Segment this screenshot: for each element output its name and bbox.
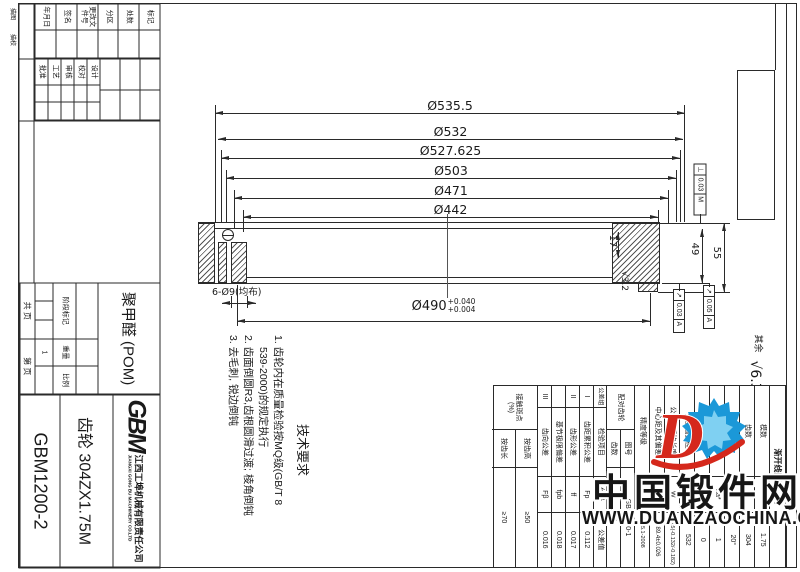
- contact-h-value: ≥50: [515, 468, 537, 567]
- roughness-rest-label: 其余: [755, 333, 766, 355]
- ext-line: [215, 105, 216, 223]
- sign-header: 审核: [60, 59, 73, 85]
- center-mark: [447, 214, 448, 298]
- sig-cell: [60, 85, 73, 103]
- dim-d532: Ø532: [218, 139, 683, 140]
- fcf-datum: A: [704, 315, 714, 325]
- margin-label-2: 描校: [4, 34, 16, 56]
- fcf-value: 0.05: [704, 296, 714, 315]
- bore-tol-lower: +0.004: [448, 306, 476, 314]
- tol-code: ff: [565, 477, 579, 513]
- dim-label: Ø442: [243, 202, 658, 217]
- top-right-box-edge: [775, 3, 776, 70]
- weight-value: 1: [34, 339, 52, 367]
- left-hole-wall-hatch: [218, 242, 227, 283]
- dim-label: Ø527.625: [221, 143, 680, 158]
- margin-label-1: 描图: [4, 8, 16, 30]
- sign-header: 校对: [73, 59, 86, 85]
- title-block-spacer: [19, 121, 159, 283]
- dim-label: Ø535.5: [215, 98, 685, 113]
- fcf-value: 0.03: [674, 300, 684, 319]
- ext-line: [660, 223, 730, 224]
- tech-req-title: 技术要求: [295, 335, 310, 565]
- top-right-box: [737, 70, 775, 220]
- tol-value: 0.016: [537, 513, 551, 567]
- sign-header: 工艺: [47, 59, 60, 85]
- ext-line: [243, 210, 244, 232]
- fcf-symbol: ↗: [704, 286, 714, 296]
- stage-label: 阶段标记: [52, 283, 75, 339]
- drawing-sheet: 描图 描校 标记 处数 分区 更改文件号 签名 年月日: [0, 0, 800, 572]
- material-section: 聚甲醛 (POM) 阶段标记 重量 比例 1 共 页 第 页: [19, 283, 159, 395]
- stage-box: [34, 320, 52, 339]
- contact-l-label: 按齿长: [492, 430, 515, 468]
- rev-header: 标记: [138, 4, 159, 30]
- dim-label: Ø471: [234, 183, 668, 198]
- sig-cell: [119, 59, 139, 90]
- fcf-perpendicularity: ⊥ 0.03 M: [694, 164, 707, 216]
- tech-req-line: 3. 去毛刺, 锐边倒钝: [225, 335, 240, 565]
- ext-line: [662, 283, 710, 284]
- tol-group: III: [537, 386, 551, 408]
- ext-line: [234, 190, 235, 228]
- dim-d442: Ø442: [243, 217, 658, 218]
- rim-top-line2: [215, 228, 612, 229]
- rev-header: 年月日: [34, 4, 55, 30]
- ext-line: [676, 170, 677, 222]
- dim-55: [724, 223, 725, 292]
- fcf-value: 0.03: [695, 175, 706, 194]
- dim-d471: Ø471: [234, 198, 668, 199]
- hole-dim: [222, 303, 256, 304]
- sig-cell: [47, 102, 60, 120]
- dim-d535: Ø535.5: [215, 113, 685, 114]
- fcf-runout-1: ↗ 0.03 A: [673, 289, 685, 333]
- signature-table: 设计 校对 审核 工艺 批准: [19, 59, 159, 121]
- tol-value: 0.018: [551, 513, 565, 567]
- rim-bottom-line: [198, 283, 660, 284]
- rev-entry: [117, 30, 138, 58]
- dim-label: Ø532: [218, 124, 683, 139]
- sig-cell: [73, 102, 86, 120]
- dim-d527: Ø527.625: [221, 158, 680, 159]
- sign-header: 设计: [86, 59, 99, 85]
- sig-cell: [99, 59, 119, 90]
- contact-label: 接触斑点: [515, 394, 523, 422]
- stage-box: [34, 283, 52, 301]
- bore-value: Ø490: [412, 299, 447, 314]
- tol-code: fpb: [551, 477, 565, 513]
- rev-entry: [76, 30, 97, 58]
- dim-55-label: 55: [710, 246, 722, 260]
- scale-entry: [75, 366, 97, 394]
- rev-entry: [138, 30, 159, 58]
- fcf-symbol: ↗: [674, 290, 684, 300]
- dim-49-label: 49: [688, 242, 700, 256]
- bore-line: [247, 277, 612, 278]
- fcf-symbol: ⊥: [695, 165, 706, 175]
- scale-value: [34, 366, 52, 394]
- weight-label: 重量: [52, 339, 75, 367]
- tol-group: [551, 386, 565, 408]
- sig-cell: [139, 90, 159, 121]
- ext-line: [658, 292, 730, 293]
- sign-header: 批准: [34, 59, 47, 85]
- drawing-number: GBM1200-2: [19, 395, 59, 567]
- ext-line: [684, 105, 685, 222]
- weight-entry: [75, 339, 97, 367]
- sig-cell: [86, 102, 99, 120]
- sig-cell: [60, 102, 73, 120]
- stage-entry: [75, 283, 97, 339]
- revision-table: 标记 处数 分区 更改文件号 签名 年月日: [19, 4, 159, 59]
- holes-callout: 6-Ø9(均布): [212, 284, 261, 298]
- bore-dim-label: Ø490 +0.040 +0.004: [237, 298, 650, 314]
- fcf-datum: M: [695, 193, 706, 204]
- ext-line: [668, 190, 669, 223]
- sig-cell: [139, 59, 159, 90]
- sheet-number: 第 页: [19, 339, 34, 395]
- tol-item: 齿距累积公差: [579, 408, 593, 477]
- part-name: 齿轮 304ZX1.75M: [59, 395, 112, 567]
- rev-entry: [55, 30, 76, 58]
- ext-line: [226, 170, 227, 223]
- material-value: 聚甲醛 (POM): [97, 283, 159, 394]
- company-block: GBM 江西工埠机械有限责任公司 JIANGXI GONG BU MACHINE…: [112, 395, 159, 567]
- dim-17: [618, 232, 619, 258]
- tech-req-line: 539-2000)的规定执行: [255, 335, 270, 565]
- tol-item: 齿形公差: [565, 408, 579, 477]
- sheet-total: 共 页: [19, 283, 34, 339]
- title-block: 标记 处数 分区 更改文件号 签名 年月日: [18, 3, 160, 568]
- stage-box: [34, 301, 52, 319]
- company-name-cn: 江西工埠机械有限责任公司: [132, 454, 145, 562]
- tol-code: Fβ: [537, 477, 551, 513]
- datum-circle-bar: [222, 235, 234, 236]
- watermark-site-url: WWW.DUANZAOCHINA.COM: [582, 508, 800, 529]
- bore-tolerance: +0.040 +0.004: [448, 298, 476, 314]
- tol-group: I: [579, 386, 593, 408]
- roughness-32: √3.2: [617, 266, 629, 296]
- tol-item: 齿向公差: [537, 408, 551, 477]
- company-name-en: JIANGXI GONG BU MACHINERY CO.LTD: [127, 454, 132, 541]
- sig-cell: [119, 90, 139, 121]
- right-lip-hatch: [638, 283, 658, 292]
- fcf-datum: A: [674, 319, 684, 329]
- dim-49: [702, 229, 703, 283]
- sig-cell: [86, 85, 99, 103]
- dim-label: Ø503: [226, 163, 676, 178]
- name-section: GBM 江西工埠机械有限责任公司 JIANGXI GONG BU MACHINE…: [19, 395, 159, 567]
- fcf-leader: [700, 214, 701, 223]
- fcf-leader: [679, 284, 680, 291]
- tech-requirements: 技术要求 1. 齿轮内在质量检验按MQ级(GB/T 8 539-2000)的规定…: [160, 335, 310, 565]
- tol-group: II: [565, 386, 579, 408]
- sig-cell: [34, 102, 47, 120]
- tol-value: 0.017: [565, 513, 579, 567]
- ext-line: [221, 150, 222, 223]
- sig-cell: [47, 85, 60, 103]
- ext-line: [680, 150, 681, 222]
- rev-header: 处数: [117, 4, 138, 30]
- rim-top-line: [198, 222, 660, 223]
- rev-header: 更改文件号: [76, 4, 97, 30]
- rev-header: 分区: [97, 4, 118, 30]
- left-flange-hatch: [198, 223, 215, 283]
- rev-entry: [97, 30, 118, 58]
- sig-cell: [34, 85, 47, 103]
- contact-label-cell: 接触斑点 (%): [492, 386, 537, 430]
- tech-req-line: 1. 齿轮内在质量检验按MQ级(GB/T 8: [270, 335, 285, 565]
- mating-gear-label: 配对齿轮: [606, 386, 634, 430]
- tol-header-group: 公差组: [593, 386, 606, 408]
- scale-label: 比例: [52, 366, 75, 394]
- contact-h-label: 按齿高: [515, 430, 537, 468]
- dim-d503: Ø503: [226, 178, 676, 179]
- ext-line: [650, 293, 651, 326]
- sig-cell: [99, 90, 119, 121]
- contact-pct: (%): [507, 402, 515, 413]
- sig-cell: [73, 85, 86, 103]
- hole-ext: [231, 296, 232, 308]
- fcf-leader: [709, 284, 710, 287]
- left-hole-wall-hatch2: [231, 242, 247, 283]
- fcf-runout-2: ↗ 0.05 A: [703, 285, 715, 329]
- contact-l-value: ≥70: [492, 468, 515, 567]
- company-logo: GBM: [122, 399, 151, 451]
- dim-bore: Ø490 +0.040 +0.004: [237, 321, 650, 322]
- ext-line: [658, 210, 659, 223]
- tech-req-line: 2. 齿面倒圆R3,齿根圆滑过渡; 棱角倒钝: [240, 335, 255, 565]
- dim-17-label: 17: [606, 234, 618, 248]
- tol-item: 基节极限偏差: [551, 408, 565, 477]
- rev-header: 签名: [55, 4, 76, 30]
- rev-entry: [34, 30, 55, 58]
